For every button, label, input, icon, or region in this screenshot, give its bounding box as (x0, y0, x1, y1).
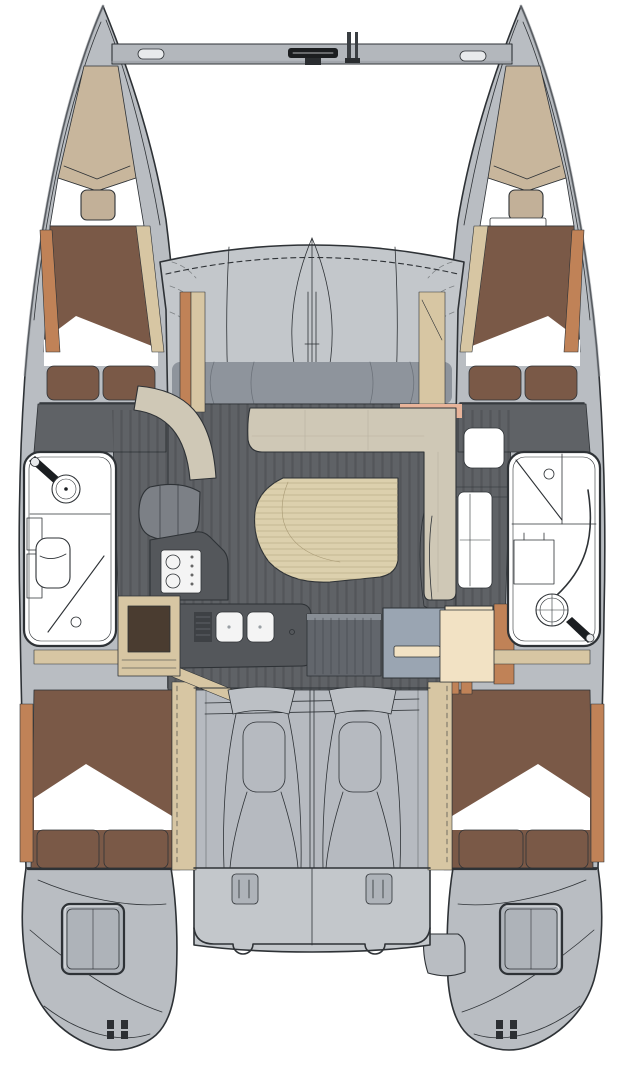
starboard-step-bar-1 (496, 1020, 503, 1029)
starboard-aft-cabinet (440, 610, 494, 682)
plan-root (19, 6, 605, 1050)
aft-deck-hatch-starboard (366, 874, 392, 904)
port-aft-pillow-1 (37, 830, 99, 868)
starboard-aft-pillow-1 (459, 830, 523, 868)
crossbeam-group (112, 32, 512, 65)
salon-table-grain (255, 478, 398, 582)
starboard-step-bar-2 (496, 1031, 503, 1039)
sink-drain-left (227, 625, 230, 628)
port-aft-pillow-2 (104, 830, 168, 868)
port-toilet (36, 538, 70, 588)
galley-fridge-front (128, 606, 170, 652)
galley-vent-grill (194, 612, 212, 642)
starboard-faucet-knob-icon (586, 634, 594, 642)
stove-knob-3 (191, 574, 194, 577)
port-steps-panel (191, 292, 205, 412)
companionway-sill (307, 614, 381, 620)
sink-drain-right (258, 625, 261, 628)
nav-cabinet (383, 608, 445, 678)
starboard-aft-pillow-2 (526, 830, 588, 868)
companionway-steps (307, 614, 381, 676)
anchor-bracket-icon (305, 58, 321, 65)
cockpit-floor (194, 688, 430, 868)
nav-cabinet-slot (394, 646, 440, 657)
forestay-post-left (347, 32, 351, 62)
stove-knob-4 (191, 583, 194, 586)
port-showerhead-icon (31, 458, 40, 467)
starboard-step-bar-3 (510, 1020, 517, 1029)
port-aft-inboard-wall (172, 682, 196, 870)
starboard-aft-outboard-trim (591, 704, 604, 862)
catamaran-floorplan-svg (0, 0, 624, 1080)
port-forward-sheet-band (44, 352, 158, 366)
starboard-forward-foot-pillow-1 (469, 366, 521, 400)
starboard-cockpit-headrest (329, 687, 396, 714)
port-forward-foot-pillow-1 (47, 366, 99, 400)
salon-chair (139, 484, 200, 540)
starboard-step-bar-4 (510, 1031, 517, 1039)
stove-top (161, 550, 201, 593)
starboard-steps-panel (419, 292, 445, 404)
windshield-band (172, 362, 452, 404)
port-sink-drain (64, 487, 68, 491)
starboard-forward-foot-pillow-2 (525, 366, 577, 400)
port-cockpit-headrest (228, 687, 295, 714)
stove-knob-1 (191, 556, 194, 559)
floorplan-stage (0, 0, 624, 1080)
starboard-aft-inboard-wall (428, 682, 452, 870)
aft-deck-hatch-port (232, 874, 258, 904)
port-forward-pillow (81, 190, 115, 220)
forestay-base (345, 58, 360, 63)
port-step-bar-2 (107, 1031, 114, 1039)
starboard-forward-sheet-band (466, 352, 580, 366)
port-bow-cleat (138, 49, 164, 59)
port-step-bar-4 (121, 1031, 128, 1039)
port-companion-wood-panel (180, 292, 191, 412)
forestay-post-right (355, 32, 358, 62)
port-step-bar-3 (121, 1020, 128, 1029)
starboard-end-table (464, 428, 504, 468)
port-aft-outboard-trim (20, 704, 33, 862)
starboard-bow-cleat (460, 51, 486, 61)
port-step-bar-1 (107, 1020, 114, 1029)
stove-knob-2 (191, 565, 194, 568)
starboard-forward-pillow (509, 190, 543, 220)
